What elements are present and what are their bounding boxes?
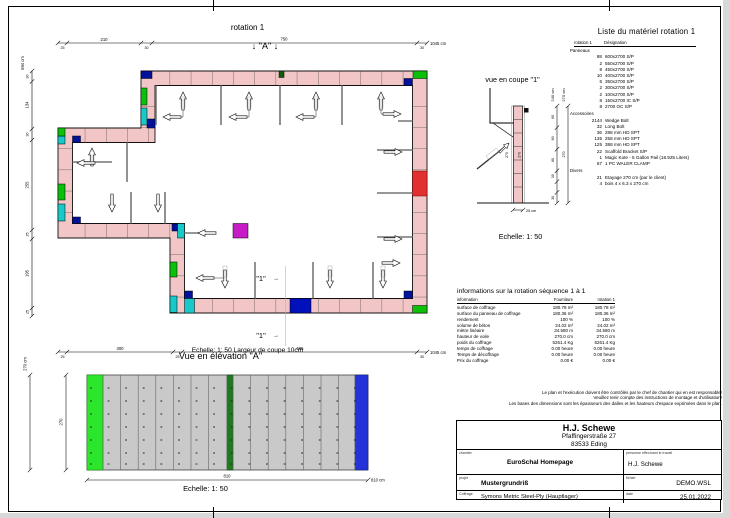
crop-mark <box>609 0 610 11</box>
cell-des: bois 4 x 6.3 x 270 cm <box>605 181 723 187</box>
material-header-qty: rotation 1 <box>574 40 604 45</box>
waler-clamp <box>524 108 529 113</box>
dim-label: 210 <box>101 37 109 42</box>
cell-label: Prix du coffrage <box>457 358 527 364</box>
info-col-rotation: rotation 1 <box>573 297 615 302</box>
dim-label: 750 <box>281 37 289 42</box>
dim-label: 270 <box>562 152 566 158</box>
project-cell: projet Mustergrundriß <box>457 475 624 490</box>
material-rows-panneaux: 88600x2700 S/P2550x2700 S/P8450x2700 S/P… <box>570 54 723 110</box>
cell-des: 1 PC WALER CLAMP <box>605 161 723 167</box>
arrow-label-boxes <box>90 97 385 277</box>
plan-notes: Le plan et l'exécution doivent être cont… <box>380 390 722 406</box>
material-rows-accessoires: 2144Wedge Bolt32Long Bolt36288 mm HD SPT… <box>570 118 723 168</box>
company-city: 83533 Eding <box>457 441 721 449</box>
person-value: H.J. Schewe <box>628 461 721 468</box>
site-label: chantier <box>459 451 472 455</box>
company-street: Pfaffingerstraße 27 <box>457 433 721 441</box>
material-rows-divers: 21Etayage 270 cm (par le client)4bois 4 … <box>570 175 723 187</box>
material-header-designation: Désignation <box>604 40 627 45</box>
formwork-cell: Coffrage Symons Metric Steel-Ply (Hauptl… <box>457 491 624 503</box>
dim-label: 30 <box>420 355 424 359</box>
dim-label: 30 <box>551 174 555 178</box>
note-line: Les bases des dimensions sont les épaiss… <box>380 401 722 406</box>
file-cell: fichier DEMO.WSL <box>624 475 721 490</box>
plan-drawing: "1" → "1" → 25 210 30 750 30 1045 cm 25 … <box>0 0 450 365</box>
material-row: 671 PC WALER CLAMP <box>570 161 723 167</box>
dim-label: 25 <box>61 46 65 50</box>
dim-total: 240 cm <box>550 88 555 102</box>
site-value: EuroSchal Homepage <box>457 459 623 466</box>
info-table-title: informations sur la rotation séquence 1 … <box>457 288 615 295</box>
section-marker-1-lower: "1" <box>256 331 266 340</box>
cell-fourniture: 0.00 € <box>527 358 573 364</box>
formwork-value: Symons Metric Steel-Ply (Hauptlager) <box>481 494 623 500</box>
dim-label: 810 <box>224 473 232 478</box>
dim-label: 25 <box>26 310 30 314</box>
panel-joints <box>58 71 427 313</box>
info-rows: surface de coffrage180.78 m²180.78 m²sur… <box>457 305 615 363</box>
cell-des: 2700 OC S/P <box>605 104 723 110</box>
dim-label: 30 <box>26 133 30 137</box>
crop-mark <box>213 507 214 518</box>
title-block: H.J. Schewe Pfaffingerstraße 27 83533 Ed… <box>456 420 722 500</box>
dim-label: 25 <box>26 233 30 237</box>
dim-total: 1045 cm <box>430 41 447 46</box>
plan-dim-left <box>30 69 34 318</box>
dim-total: 810 cm <box>371 478 385 483</box>
date-value: 25.01.2022 <box>624 494 721 501</box>
dim-label: 30 <box>145 46 149 50</box>
info-table-header: information Fourniture rotation 1 <box>457 297 615 304</box>
dim-label: 30 <box>551 196 555 200</box>
person-cell: personne effectuant le travail H.J. Sche… <box>624 450 721 474</box>
wall-height-label: 270 <box>518 152 522 158</box>
elevation-drawing: 270 cm 270 810 810 cm <box>0 345 410 505</box>
dim-label: 30 <box>26 75 30 79</box>
scaffold-bracket <box>490 88 516 137</box>
wall-height-label: 270 <box>505 152 509 158</box>
dim-total: 270 cm <box>561 88 566 102</box>
title-block-header: H.J. Schewe Pfaffingerstraße 27 83533 Ed… <box>457 421 721 450</box>
formwork-label: Coffrage <box>459 492 473 496</box>
material-list-title: Liste du matériel rotation 1 <box>570 27 723 36</box>
rotation-info-table: informations sur la rotation séquence 1 … <box>457 288 615 363</box>
coupe-drawing: 60 60 60 30 30 240 cm 270 270 cm 270 270… <box>450 55 585 250</box>
cell-qty: 8 <box>570 104 605 110</box>
page-edge-bottom <box>0 513 730 518</box>
material-row: 82700 OC S/P <box>570 104 723 110</box>
dim-total: 270 cm <box>23 357 28 371</box>
dim-label: 60 <box>551 136 555 140</box>
dim-label: 60 <box>551 115 555 119</box>
project-value: Mustergrundriß <box>481 480 623 487</box>
corner-panels <box>58 71 427 313</box>
project-label: projet <box>459 476 468 480</box>
cell-qty: 4 <box>570 181 605 187</box>
file-value: DEMO.WSL <box>624 480 721 487</box>
info-col-fourniture: Fourniture <box>527 297 573 302</box>
company-name: H.J. Schewe <box>457 421 721 433</box>
title-block-row-project: projet Mustergrundriß fichier DEMO.WSL <box>457 475 721 491</box>
title-block-row-site: chantier EuroSchal Homepage personne eff… <box>457 450 721 475</box>
page-edge-right <box>723 0 730 518</box>
dim-total: 1045 cm <box>430 350 447 355</box>
cell-qty: 67 <box>570 161 605 167</box>
section-marker-1-lower-arrow: → <box>273 333 279 339</box>
dim-label: 270 <box>59 418 64 426</box>
date-cell: date 25.01.2022 <box>624 491 721 503</box>
wall-band <box>58 71 427 313</box>
dim-label: 255 <box>25 181 30 189</box>
section-marker-1-upper: "1" <box>256 274 266 283</box>
material-row: 4bois 4 x 6.3 x 270 cm <box>570 181 723 187</box>
file-label: fichier <box>626 476 636 480</box>
crop-mark <box>609 507 610 518</box>
section-marker-1-upper-arrow: → <box>273 276 279 282</box>
title-block-row-formwork: Coffrage Symons Metric Steel-Ply (Hauptl… <box>457 491 721 503</box>
material-list: Liste du matériel rotation 1 rotation 1 … <box>570 27 723 187</box>
site-cell: chantier EuroSchal Homepage <box>457 450 624 474</box>
direction-arrows <box>77 92 402 288</box>
plan-dim-top <box>56 41 429 45</box>
wall-width-label: 25 cm <box>526 209 536 213</box>
cell-rotation: 0.00 € <box>573 358 615 364</box>
elevation-panels <box>87 375 368 470</box>
info-col-information: information <box>457 297 527 302</box>
dim-label: 134 <box>25 101 30 109</box>
date-label: date <box>626 492 633 496</box>
dim-label: 30 <box>420 46 424 50</box>
dim-label: 195 <box>25 269 30 277</box>
person-label: personne effectuant le travail <box>626 451 672 455</box>
dim-total: 694 cm <box>20 56 25 70</box>
info-row: Prix du coffrage0.00 €0.00 € <box>457 358 615 364</box>
material-list-header: rotation 1 Désignation <box>574 40 696 47</box>
dim-label: 60 <box>551 158 555 162</box>
